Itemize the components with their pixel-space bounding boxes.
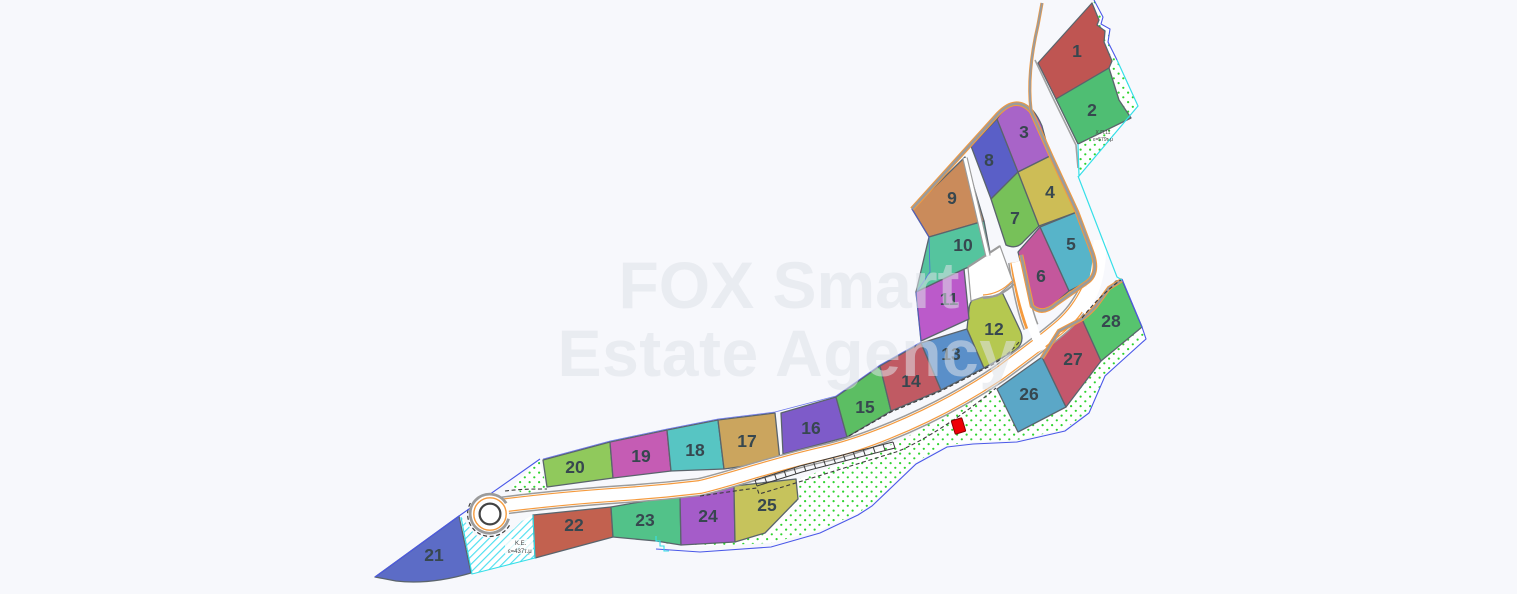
- svg-text:6: 6: [1036, 266, 1046, 286]
- svg-text:26: 26: [1019, 384, 1039, 404]
- svg-text:ε=437τ.μ: ε=437τ.μ: [508, 549, 532, 555]
- svg-text:19: 19: [631, 446, 651, 466]
- svg-text:Χ.Π.11: Χ.Π.11: [1096, 130, 1111, 136]
- svg-text:9: 9: [947, 188, 957, 208]
- svg-text:23: 23: [635, 510, 655, 530]
- svg-text:15: 15: [855, 397, 875, 417]
- svg-text:20: 20: [565, 457, 585, 477]
- svg-text:21: 21: [424, 545, 444, 565]
- svg-text:5: 5: [1066, 234, 1076, 254]
- svg-text:28: 28: [1101, 311, 1121, 331]
- svg-text:2: 2: [1087, 100, 1097, 120]
- svg-text:Estate Agency: Estate Agency: [558, 316, 1017, 390]
- svg-text:18: 18: [685, 440, 705, 460]
- svg-text:22: 22: [564, 515, 584, 535]
- svg-text:27: 27: [1063, 349, 1082, 369]
- svg-text:25: 25: [757, 495, 777, 515]
- svg-text:FOX Smart: FOX Smart: [618, 248, 959, 322]
- svg-text:3: 3: [1019, 122, 1029, 142]
- svg-text:1: 1: [1072, 41, 1082, 61]
- svg-text:7: 7: [1010, 208, 1020, 228]
- svg-text:24: 24: [698, 506, 718, 526]
- svg-text:8: 8: [984, 150, 994, 170]
- svg-text:16: 16: [801, 418, 821, 438]
- svg-text:17: 17: [737, 431, 756, 451]
- svg-text:Κ.Ε.: Κ.Ε.: [515, 541, 527, 547]
- svg-text:4: 4: [1045, 182, 1055, 202]
- svg-text:ε=579τ.μ: ε=579τ.μ: [1093, 137, 1113, 143]
